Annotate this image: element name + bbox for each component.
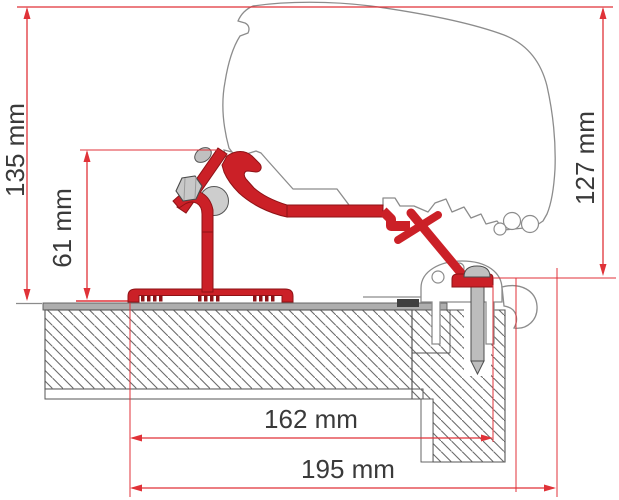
dim-label-127mm: 127 mm bbox=[572, 111, 598, 205]
dim-label-162mm: 162 mm bbox=[264, 406, 358, 432]
dimension-61mm bbox=[80, 150, 217, 300]
dim-label-61mm: 61 mm bbox=[49, 188, 75, 267]
screw-shaft bbox=[471, 280, 484, 361]
technical-diagram: 135 mm 61 mm 127 mm 162 mm 195 mm bbox=[0, 0, 619, 500]
case-extrusion-curl bbox=[494, 223, 506, 235]
bracket-arm-jog bbox=[383, 211, 410, 226]
awning-case-silhouette bbox=[223, 2, 555, 230]
dim-label-135mm: 135 mm bbox=[2, 103, 28, 197]
inner-wall-strip bbox=[421, 399, 433, 462]
bracket-main-arm bbox=[287, 205, 383, 217]
screw-head bbox=[464, 266, 490, 277]
rail-clamp-block bbox=[397, 299, 419, 307]
dimension-195mm bbox=[130, 485, 556, 492]
roof-skin-band bbox=[43, 303, 447, 310]
case-extrusion-curl bbox=[522, 216, 539, 233]
dim-label-195mm: 195 mm bbox=[301, 456, 395, 482]
roof-slab-hatched bbox=[45, 310, 412, 389]
ceiling-panel bbox=[45, 389, 423, 399]
rail-claw-hook bbox=[502, 286, 537, 329]
mounting-screw bbox=[471, 280, 484, 374]
roof-cross-section bbox=[16, 303, 447, 399]
rail-hole bbox=[432, 271, 444, 283]
base-plate-serrations bbox=[141, 296, 275, 302]
